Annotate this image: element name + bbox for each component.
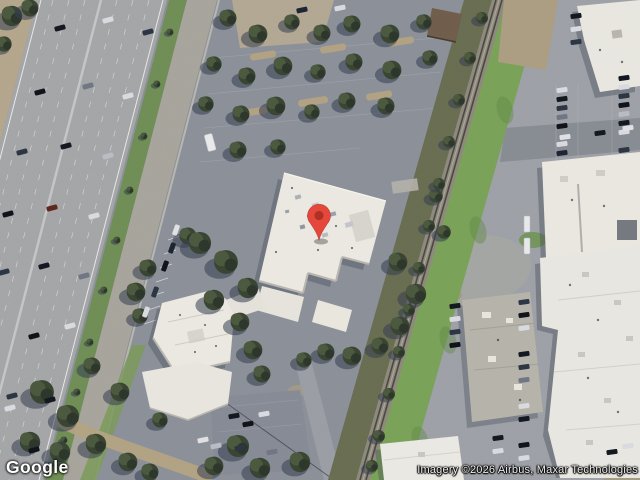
imagery-attribution: Imagery ©2026 Airbus, Maxar Technologies xyxy=(417,465,638,476)
google-maps-satellite-view[interactable]: Google Imagery ©2026 Airbus, Maxar Techn… xyxy=(0,0,640,480)
satellite-imagery[interactable] xyxy=(0,0,640,480)
pin-core xyxy=(314,211,323,220)
google-logo[interactable]: Google xyxy=(6,459,69,477)
pin-shadow xyxy=(314,239,328,245)
